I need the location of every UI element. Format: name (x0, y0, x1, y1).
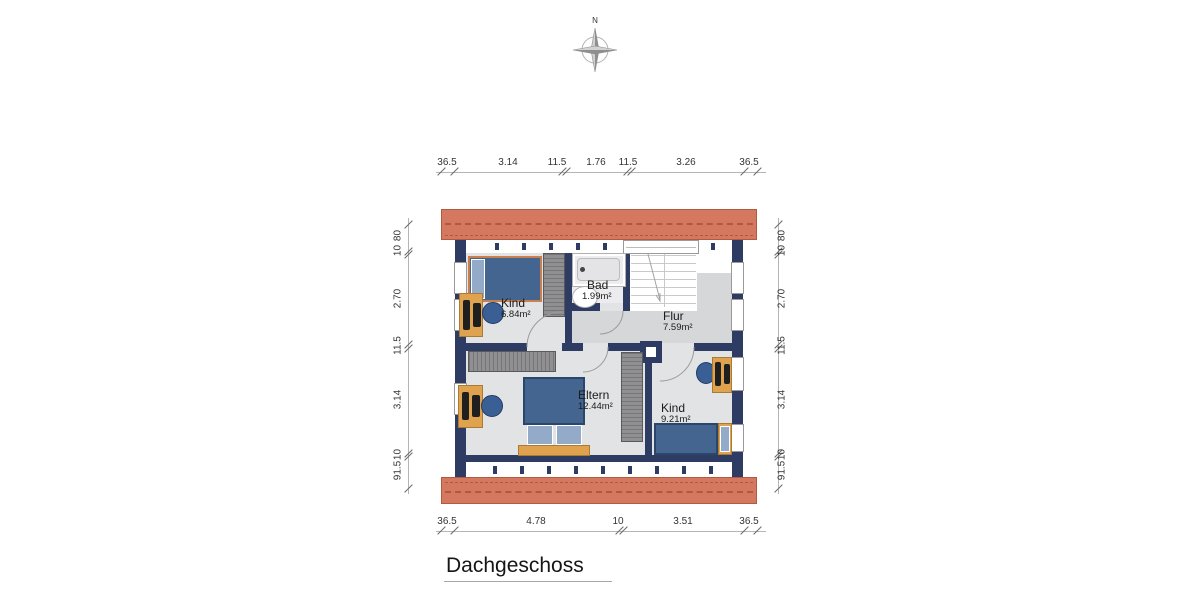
window (731, 357, 744, 391)
bed-eltern (523, 377, 585, 425)
dim-top-1: 3.14 (498, 157, 517, 168)
knee-wall-bottom (466, 462, 732, 477)
room-name: Eltern (578, 389, 613, 402)
stairwell-opening (697, 253, 732, 273)
hallway-floor (572, 311, 732, 343)
floor-plan: Kind 6.84m² Bad 1.99m² Flur 7.59m² Elter… (441, 209, 757, 504)
wall-hall-south-1 (466, 343, 527, 351)
pillow (527, 425, 553, 445)
chimney-flue (646, 347, 656, 357)
room-label-bad: Bad 1.99m² (582, 279, 612, 302)
hallway-floor-east (697, 273, 732, 311)
wardrobe-eltern-top (468, 351, 556, 372)
page-title: Dachgeschoss (444, 554, 612, 582)
room-label-eltern: Eltern 12.44m² (578, 389, 613, 412)
room-name: Kind (661, 402, 691, 415)
wall-hall-south-2 (562, 343, 583, 351)
dim-left-2: 2.70 (393, 279, 404, 319)
dim-right-3: 11.5 (777, 326, 788, 366)
chimney (640, 341, 662, 363)
window (731, 299, 744, 331)
compass-north-label: N (592, 16, 598, 25)
dim-top-4: 11.5 (619, 157, 638, 168)
dim-bottom-4: 36.5 (739, 516, 758, 527)
faucet (580, 267, 585, 272)
window (731, 424, 744, 452)
desk-item (463, 300, 470, 330)
dim-left-1: 10 (393, 231, 404, 271)
wall-kind-bad (565, 253, 572, 351)
bed-eltern-frame (518, 445, 590, 456)
pillow (720, 426, 730, 452)
roof-overhang-top (441, 209, 757, 240)
wall-hall-south-3 (608, 343, 640, 351)
dim-top-3: 1.76 (586, 157, 605, 168)
roof-dash-line (445, 482, 753, 483)
room-name: Flur (663, 310, 693, 323)
stair-divider (664, 253, 665, 307)
dim-right-2: 2.70 (777, 279, 788, 319)
chair (481, 395, 503, 417)
pillow (556, 425, 582, 445)
dim-right-6: 91.5 (777, 451, 788, 491)
desk-item (472, 395, 480, 417)
dormer-window-line (626, 247, 696, 248)
dim-top-5: 3.26 (676, 157, 695, 168)
room-area: 1.99m² (582, 292, 612, 302)
roof-dash-line (445, 491, 753, 493)
dim-bottom-0: 36.5 (437, 516, 456, 527)
room-name: Kind (501, 297, 531, 310)
roof-dash-line (445, 223, 753, 225)
dim-left-6: 91.5 (393, 451, 404, 491)
interior-wall-bottom (466, 455, 732, 462)
desk-item (473, 303, 481, 327)
wardrobe-kind-top (543, 253, 565, 317)
room-label-kind-top: Kind 6.84m² (501, 297, 531, 320)
dim-left-3: 11.5 (393, 326, 404, 366)
wall-hall-south-4 (694, 343, 732, 351)
dim-top-0: 36.5 (437, 157, 456, 168)
dim-bottom-3: 3.51 (673, 516, 692, 527)
window (454, 262, 467, 294)
dim-right-4: 3.14 (777, 380, 788, 420)
room-label-kind-bottom: Kind 9.21m² (661, 402, 691, 425)
dim-top-6: 36.5 (739, 157, 758, 168)
room-area: 7.59m² (663, 323, 693, 333)
dim-left-4: 3.14 (393, 380, 404, 420)
dimension-line-top (436, 172, 766, 173)
wall-eltern-kind (645, 363, 652, 455)
window (731, 262, 744, 294)
dim-right-1: 10 (777, 231, 788, 271)
room-area: 9.21m² (661, 415, 691, 425)
room-name: Bad (587, 279, 612, 292)
dim-top-2: 11.5 (548, 157, 567, 168)
bed-kind-bottom (654, 423, 718, 455)
room-area: 12.44m² (578, 402, 613, 412)
floorplan-canvas: N 36.5 3.14 11.5 1.76 11.5 3.26 36.5 36.… (0, 0, 1200, 600)
desk-item (724, 364, 730, 384)
dimension-line-bottom (436, 531, 766, 532)
room-label-flur: Flur 7.59m² (663, 310, 693, 333)
dim-bottom-2: 10 (612, 516, 623, 527)
room-area: 6.84m² (501, 310, 531, 320)
roof-dash-line (445, 235, 753, 236)
dim-bottom-1: 4.78 (526, 516, 545, 527)
compass-north-icon: N (570, 14, 620, 76)
desk-item (715, 362, 721, 386)
roof-overhang-bottom (441, 477, 757, 504)
wardrobe-eltern-side (621, 352, 643, 442)
dormer-window (623, 240, 699, 254)
desk-item (462, 392, 469, 420)
